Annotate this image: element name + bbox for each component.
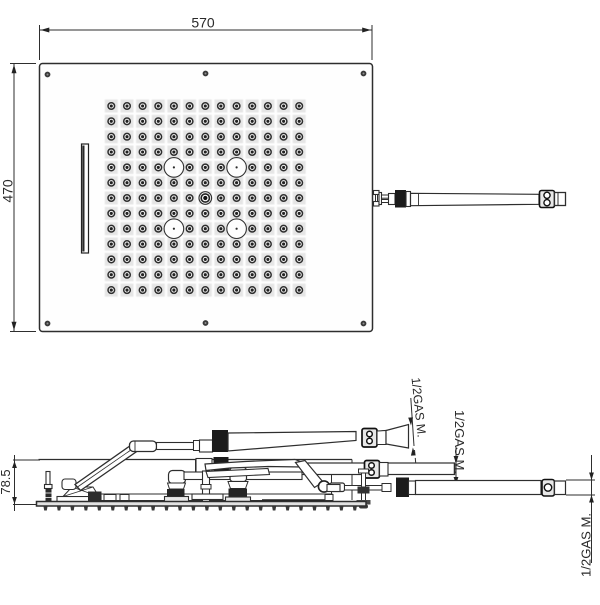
svg-text:1/2GAS M.: 1/2GAS M. (452, 410, 467, 474)
svg-text:470: 470 (0, 179, 16, 203)
svg-text:570: 570 (191, 15, 215, 31)
svg-text:78.5: 78.5 (0, 469, 13, 494)
svg-text:1/2GAS M.: 1/2GAS M. (579, 513, 594, 577)
